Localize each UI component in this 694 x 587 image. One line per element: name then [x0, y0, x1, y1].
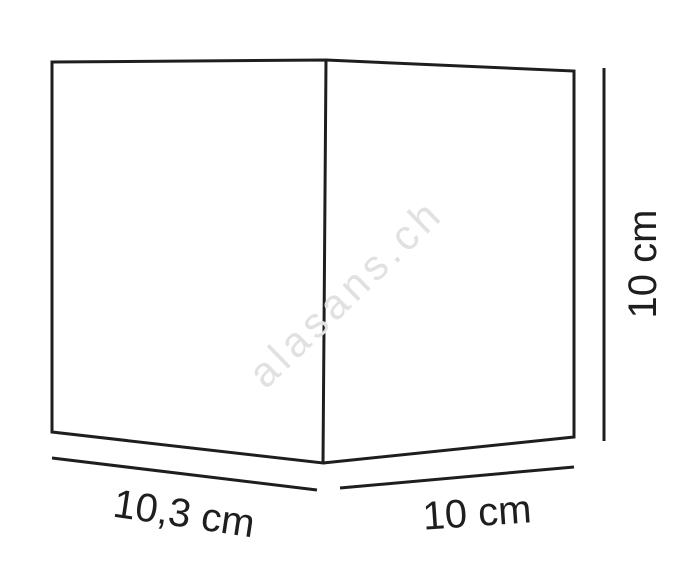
depth-dimension-line — [340, 467, 574, 488]
dimension-diagram: alasans.ch 10,3 cm 10 cm 10 cm — [0, 0, 694, 587]
height-dimension-label: 10 cm — [623, 210, 663, 319]
width-dimension-line — [52, 458, 317, 490]
cube-line-drawing — [0, 0, 694, 587]
cube-front-face — [52, 60, 326, 463]
cube-side-face — [323, 60, 574, 463]
depth-dimension-label: 10 cm — [421, 489, 532, 537]
